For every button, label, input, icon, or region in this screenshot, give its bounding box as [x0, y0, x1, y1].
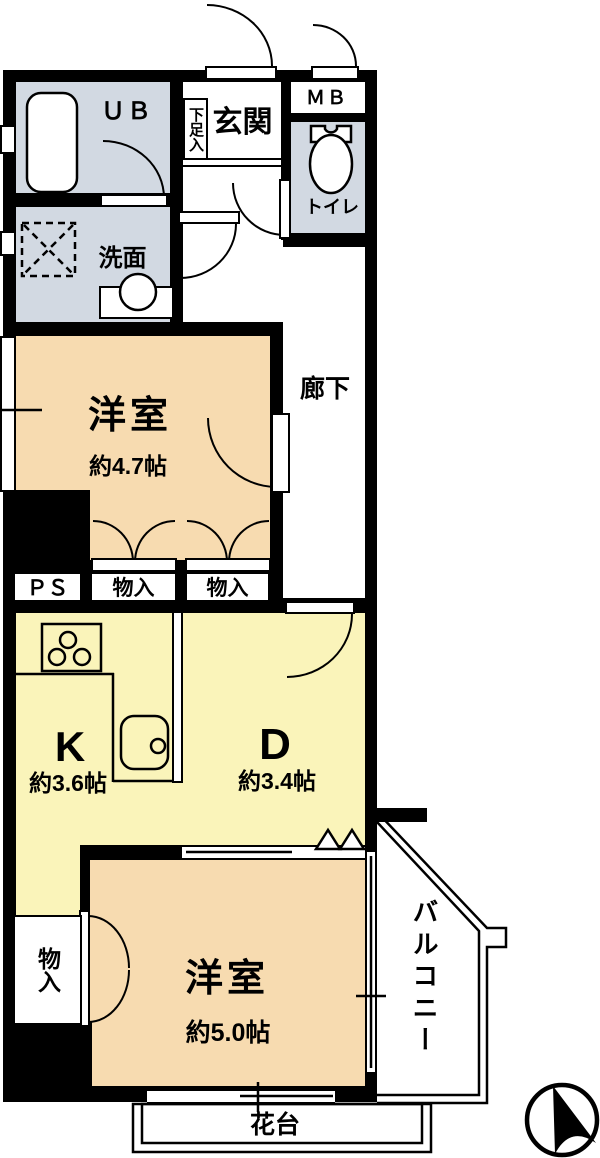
- window-bedroom1-left: [0, 336, 16, 492]
- closet1-label: 物入: [113, 572, 155, 602]
- window-ub-left: [0, 125, 16, 154]
- pipe-space-box: ＰＳ: [13, 572, 82, 602]
- wall-kitchen-bedroom2: [80, 858, 90, 917]
- wall-kd-bottom: [80, 845, 182, 860]
- closet2-door-leaf: [185, 558, 271, 572]
- entrance-door-leaf: [205, 66, 277, 80]
- entrance-label: 玄関: [205, 106, 280, 140]
- dining-label: D: [252, 721, 298, 769]
- closet3-label: 物入: [31, 947, 65, 993]
- wall-mb-toilet: [290, 113, 365, 122]
- bedroom1-label: 洋室: [78, 395, 182, 437]
- corridor-label: 廊下: [292, 375, 358, 403]
- closet3-box: 物入: [13, 915, 82, 1025]
- flower-stand-label: 花台: [232, 1110, 318, 1140]
- wall-bedroom1-top: [3, 322, 283, 336]
- compass-north-arrow: [527, 1085, 597, 1155]
- meter-box-door-arc: [313, 24, 357, 66]
- floor-plan: 下足入 ＰＳ 物入 物入 物入 ＵＢ 玄関 ＭＢ トイレ 洗面 洋室 約4.7帖…: [0, 0, 600, 1158]
- bedroom2-label: 洋室: [174, 958, 280, 1000]
- wall-right: [365, 70, 377, 855]
- toilet-label: トイレ: [303, 196, 361, 218]
- wall-balcony-stub: [375, 808, 427, 822]
- meter-box-label: ＭＢ: [295, 86, 359, 110]
- washroom-label: 洗面: [90, 245, 155, 273]
- closet2-label: 物入: [207, 572, 249, 602]
- closet1-door-leaf: [91, 558, 177, 572]
- washroom-door-leaf: [178, 211, 240, 224]
- wall-right-window-capbottom: [365, 1070, 377, 1090]
- dining-area-label: 約3.4帖: [226, 768, 328, 794]
- kd-partition: [172, 613, 183, 783]
- washroom-door-arc: [180, 224, 237, 279]
- wall-toilet-bottom: [283, 233, 377, 247]
- bedroom1-door-leaf: [271, 413, 290, 493]
- kitchen-strip: [15, 845, 90, 917]
- sliding-door-dining-bedroom2: [182, 845, 365, 860]
- bedroom1-area-label: 約4.7帖: [72, 452, 184, 480]
- unit-bath-label: ＵＢ: [92, 98, 162, 126]
- pipe-space-label: ＰＳ: [27, 572, 69, 602]
- kitchen-area-label: 約3.6帖: [16, 770, 120, 796]
- kitchen-label: K: [46, 724, 94, 770]
- meter-box-door-leaf: [311, 66, 359, 80]
- entrance-door-arc: [207, 4, 273, 66]
- dining-door-leaf: [285, 601, 355, 614]
- shoe-cabinet-label: 下足入: [185, 107, 206, 152]
- balcony-label: バルコニー: [406, 860, 442, 1095]
- toilet-door-arc: [232, 183, 285, 236]
- unit-bath-door-leaf: [100, 194, 168, 207]
- toilet-door-leaf: [279, 179, 291, 239]
- window-bedroom2-bottom: [147, 1089, 335, 1104]
- window-bedroom2-balcony: [365, 852, 377, 1072]
- closet2-box: 物入: [185, 572, 270, 602]
- bedroom2-area-label: 約5.0帖: [170, 1018, 286, 1048]
- window-washroom-left: [0, 231, 16, 256]
- closet1-box: 物入: [90, 572, 177, 602]
